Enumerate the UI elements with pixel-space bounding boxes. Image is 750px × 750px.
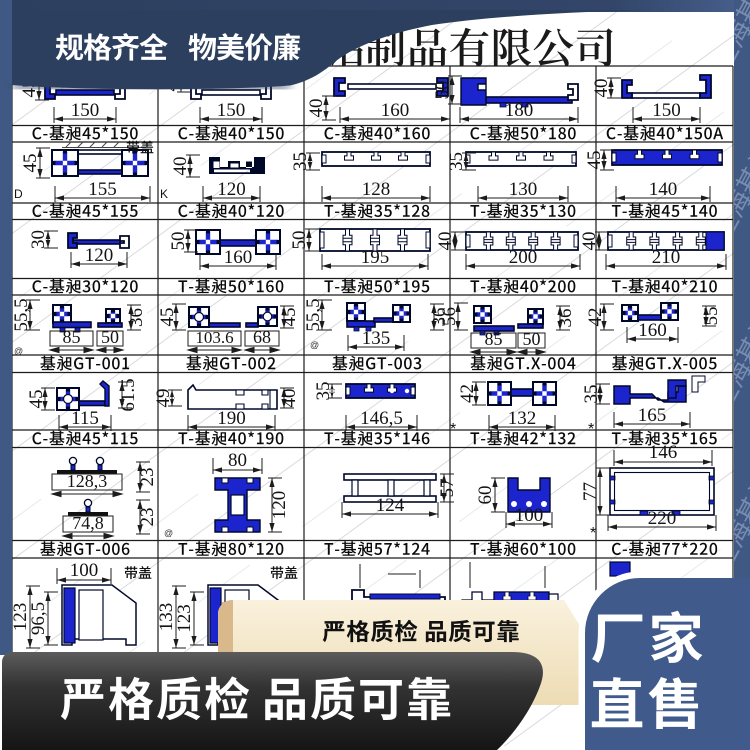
svg-text:50: 50	[289, 231, 310, 250]
svg-text:77: 77	[580, 482, 601, 501]
svg-text:160: 160	[224, 247, 253, 268]
svg-text:130: 130	[509, 179, 538, 200]
svg-text:180: 180	[505, 100, 534, 121]
svg-text:@: @	[14, 346, 23, 356]
svg-text:80: 80	[228, 450, 247, 471]
svg-text:140: 140	[649, 179, 678, 200]
svg-text:45: 45	[279, 308, 300, 327]
svg-text:150: 150	[71, 100, 100, 121]
svg-text:55: 55	[701, 307, 722, 326]
svg-text:49: 49	[153, 389, 174, 408]
svg-text:42: 42	[457, 384, 478, 403]
svg-text:40: 40	[279, 389, 300, 408]
svg-text:120: 120	[269, 491, 290, 520]
svg-text:40: 40	[306, 99, 327, 118]
svg-text:100: 100	[70, 560, 99, 581]
svg-text:85: 85	[63, 327, 81, 347]
svg-text:57: 57	[437, 479, 458, 498]
svg-text:120: 120	[217, 179, 246, 200]
svg-text:40: 40	[435, 232, 456, 251]
svg-text:85: 85	[485, 329, 503, 349]
svg-text:128: 128	[362, 179, 391, 200]
svg-text:D: D	[14, 187, 23, 201]
svg-text:96,5: 96,5	[28, 602, 49, 635]
svg-text:35: 35	[446, 152, 467, 171]
svg-text:61.5: 61.5	[118, 378, 139, 411]
svg-text:165: 165	[638, 405, 667, 426]
svg-text:150: 150	[217, 100, 246, 121]
svg-text:35: 35	[290, 152, 311, 171]
svg-text:40: 40	[170, 157, 191, 176]
svg-text:55,5: 55,5	[303, 298, 324, 331]
svg-text:146: 146	[649, 442, 678, 463]
svg-text:103.6: 103.6	[195, 328, 233, 347]
svg-text:135: 135	[362, 328, 391, 349]
svg-text:74,8: 74,8	[72, 513, 104, 533]
svg-text:36: 36	[126, 308, 147, 327]
svg-text:30: 30	[28, 230, 49, 249]
svg-text:195: 195	[361, 247, 390, 268]
svg-text:45: 45	[26, 390, 47, 409]
svg-text:45: 45	[20, 154, 41, 173]
svg-text:150: 150	[652, 100, 681, 121]
svg-text:@: @	[164, 528, 173, 538]
svg-text:124: 124	[376, 495, 405, 516]
svg-text:115: 115	[71, 408, 99, 429]
svg-text:35: 35	[581, 385, 602, 404]
svg-text:50: 50	[523, 329, 541, 349]
svg-text:200: 200	[509, 247, 538, 268]
svg-text:50: 50	[432, 81, 453, 100]
svg-text:55,5: 55,5	[11, 298, 32, 331]
svg-text:132: 132	[508, 408, 537, 429]
svg-text:K: K	[160, 187, 168, 201]
svg-text:210: 210	[652, 247, 681, 268]
svg-text:123: 123	[174, 604, 195, 633]
svg-text:50: 50	[168, 232, 189, 251]
svg-text:23: 23	[137, 468, 158, 487]
svg-text:155: 155	[88, 179, 117, 200]
svg-text:36: 36	[555, 309, 576, 328]
svg-text:45: 45	[157, 308, 178, 327]
svg-text:120: 120	[85, 245, 114, 266]
svg-text:*: *	[590, 525, 596, 542]
svg-text:23: 23	[137, 508, 158, 527]
svg-text:220: 220	[648, 508, 677, 529]
svg-text:68: 68	[253, 327, 271, 347]
svg-text:60: 60	[475, 486, 496, 505]
svg-text:160: 160	[381, 100, 410, 121]
svg-text:45: 45	[584, 151, 605, 170]
svg-text:40: 40	[579, 232, 600, 251]
svg-text:@: @	[310, 340, 319, 350]
svg-text:35: 35	[313, 382, 334, 401]
svg-text:190: 190	[217, 408, 246, 429]
svg-text:100: 100	[515, 505, 544, 526]
svg-text:50: 50	[101, 327, 119, 347]
svg-text:160: 160	[638, 320, 667, 341]
svg-text:40: 40	[591, 79, 612, 98]
svg-text:128,3: 128,3	[67, 471, 108, 491]
svg-text:42: 42	[585, 308, 606, 327]
svg-text:*: *	[450, 421, 456, 438]
svg-text:146,5: 146,5	[360, 408, 403, 429]
svg-text:*: *	[588, 421, 594, 438]
svg-text:56: 56	[439, 307, 460, 326]
